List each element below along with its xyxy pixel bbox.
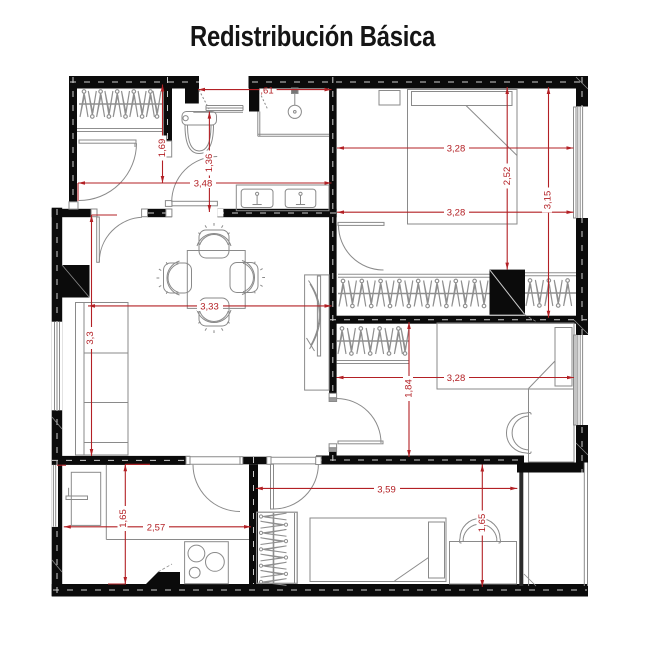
svg-text:3,3: 3,3 [85, 331, 96, 344]
svg-text:1,69: 1,69 [157, 139, 168, 158]
svg-text:3,15: 3,15 [542, 191, 553, 210]
svg-text:,61: ,61 [260, 85, 273, 96]
svg-text:3,59: 3,59 [377, 484, 396, 495]
svg-text:3,33: 3,33 [200, 301, 219, 312]
svg-text:3,28: 3,28 [447, 143, 466, 154]
svg-text:1,65: 1,65 [118, 509, 129, 528]
svg-text:1,65: 1,65 [477, 514, 488, 533]
svg-text:2,52: 2,52 [502, 167, 513, 186]
svg-text:3,48: 3,48 [194, 179, 213, 190]
svg-text:2,57: 2,57 [147, 522, 166, 533]
svg-text:3,28: 3,28 [447, 208, 466, 219]
svg-text:3,28: 3,28 [447, 373, 466, 384]
svg-text:1,84: 1,84 [403, 379, 414, 398]
svg-text:1,36: 1,36 [204, 154, 215, 173]
